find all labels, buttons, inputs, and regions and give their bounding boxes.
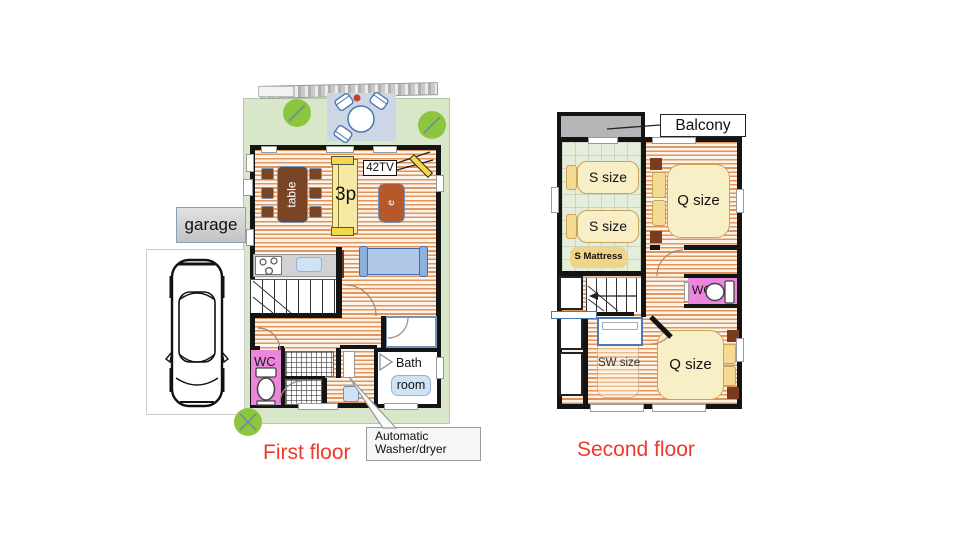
balcony-connector: [607, 125, 660, 129]
patio-table-icon: [333, 91, 389, 143]
stairs-winder-lines: [588, 286, 618, 311]
door-arc-icon: [657, 250, 683, 276]
door-arc-icon: [651, 336, 669, 344]
tree-icon: [234, 408, 262, 436]
tree-icon: [283, 99, 311, 127]
callout-pointer-icon: [349, 377, 396, 428]
door-arc-icon: [388, 318, 408, 338]
tree-icon: [418, 111, 446, 139]
car-icon: [166, 260, 228, 406]
toilet-icon: [256, 368, 276, 405]
floor-plan-canvas: table 3p e WC Bath room: [0, 0, 960, 540]
door-arc-icon: [258, 328, 280, 350]
tv-icon: [397, 152, 433, 177]
stairs-winder-lines: [253, 281, 291, 313]
door-arc-icon: [345, 285, 376, 316]
toilet-icon: [706, 281, 734, 303]
bath-door-icon: [380, 354, 392, 370]
line-art-overlay: [0, 0, 960, 540]
stairs-arrow-icon: [589, 292, 637, 300]
open-door-icon: [651, 317, 671, 337]
red-dot: [354, 95, 361, 102]
door-arc-icon: [280, 381, 302, 403]
stove-burners-icon: [260, 258, 277, 274]
